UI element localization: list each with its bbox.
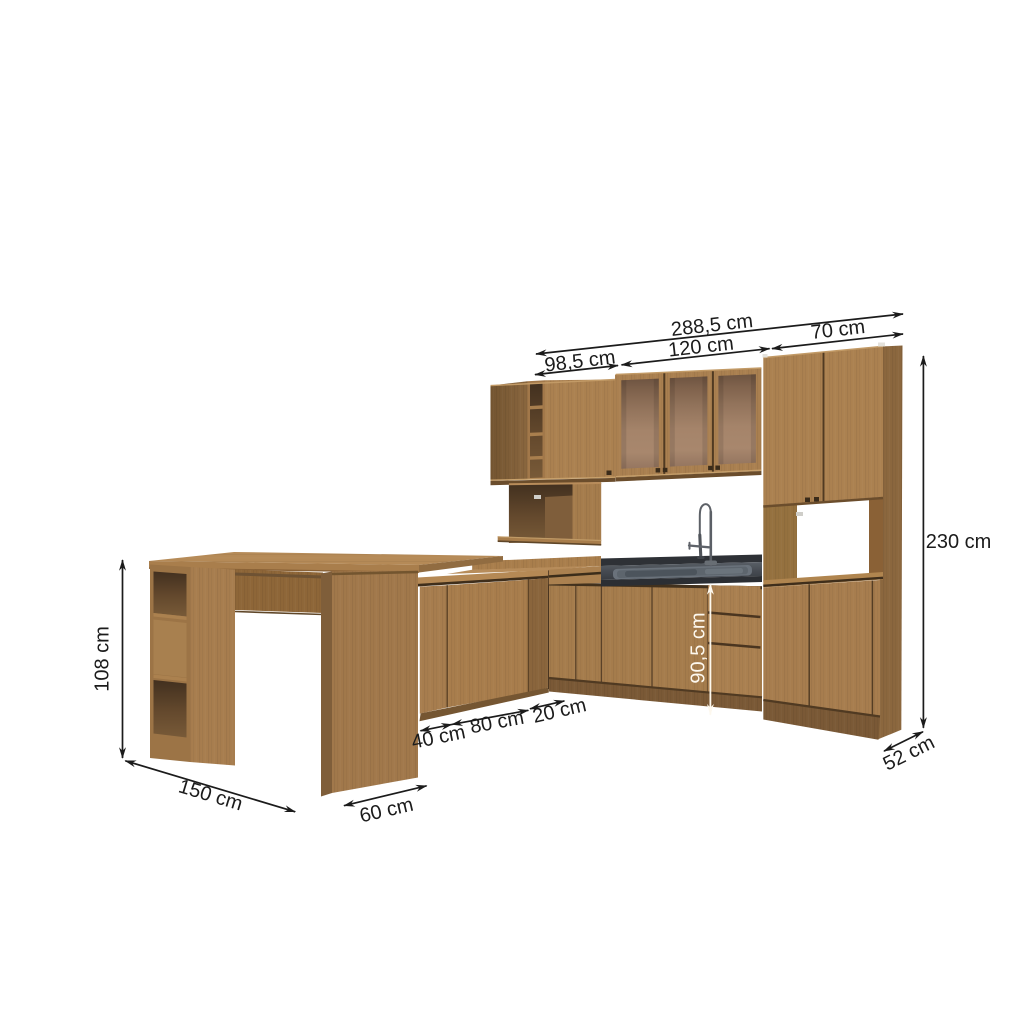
svg-text:90,5 cm: 90,5 cm	[688, 612, 710, 683]
svg-text:230 cm: 230 cm	[926, 531, 992, 553]
svg-text:108 cm: 108 cm	[92, 626, 114, 692]
